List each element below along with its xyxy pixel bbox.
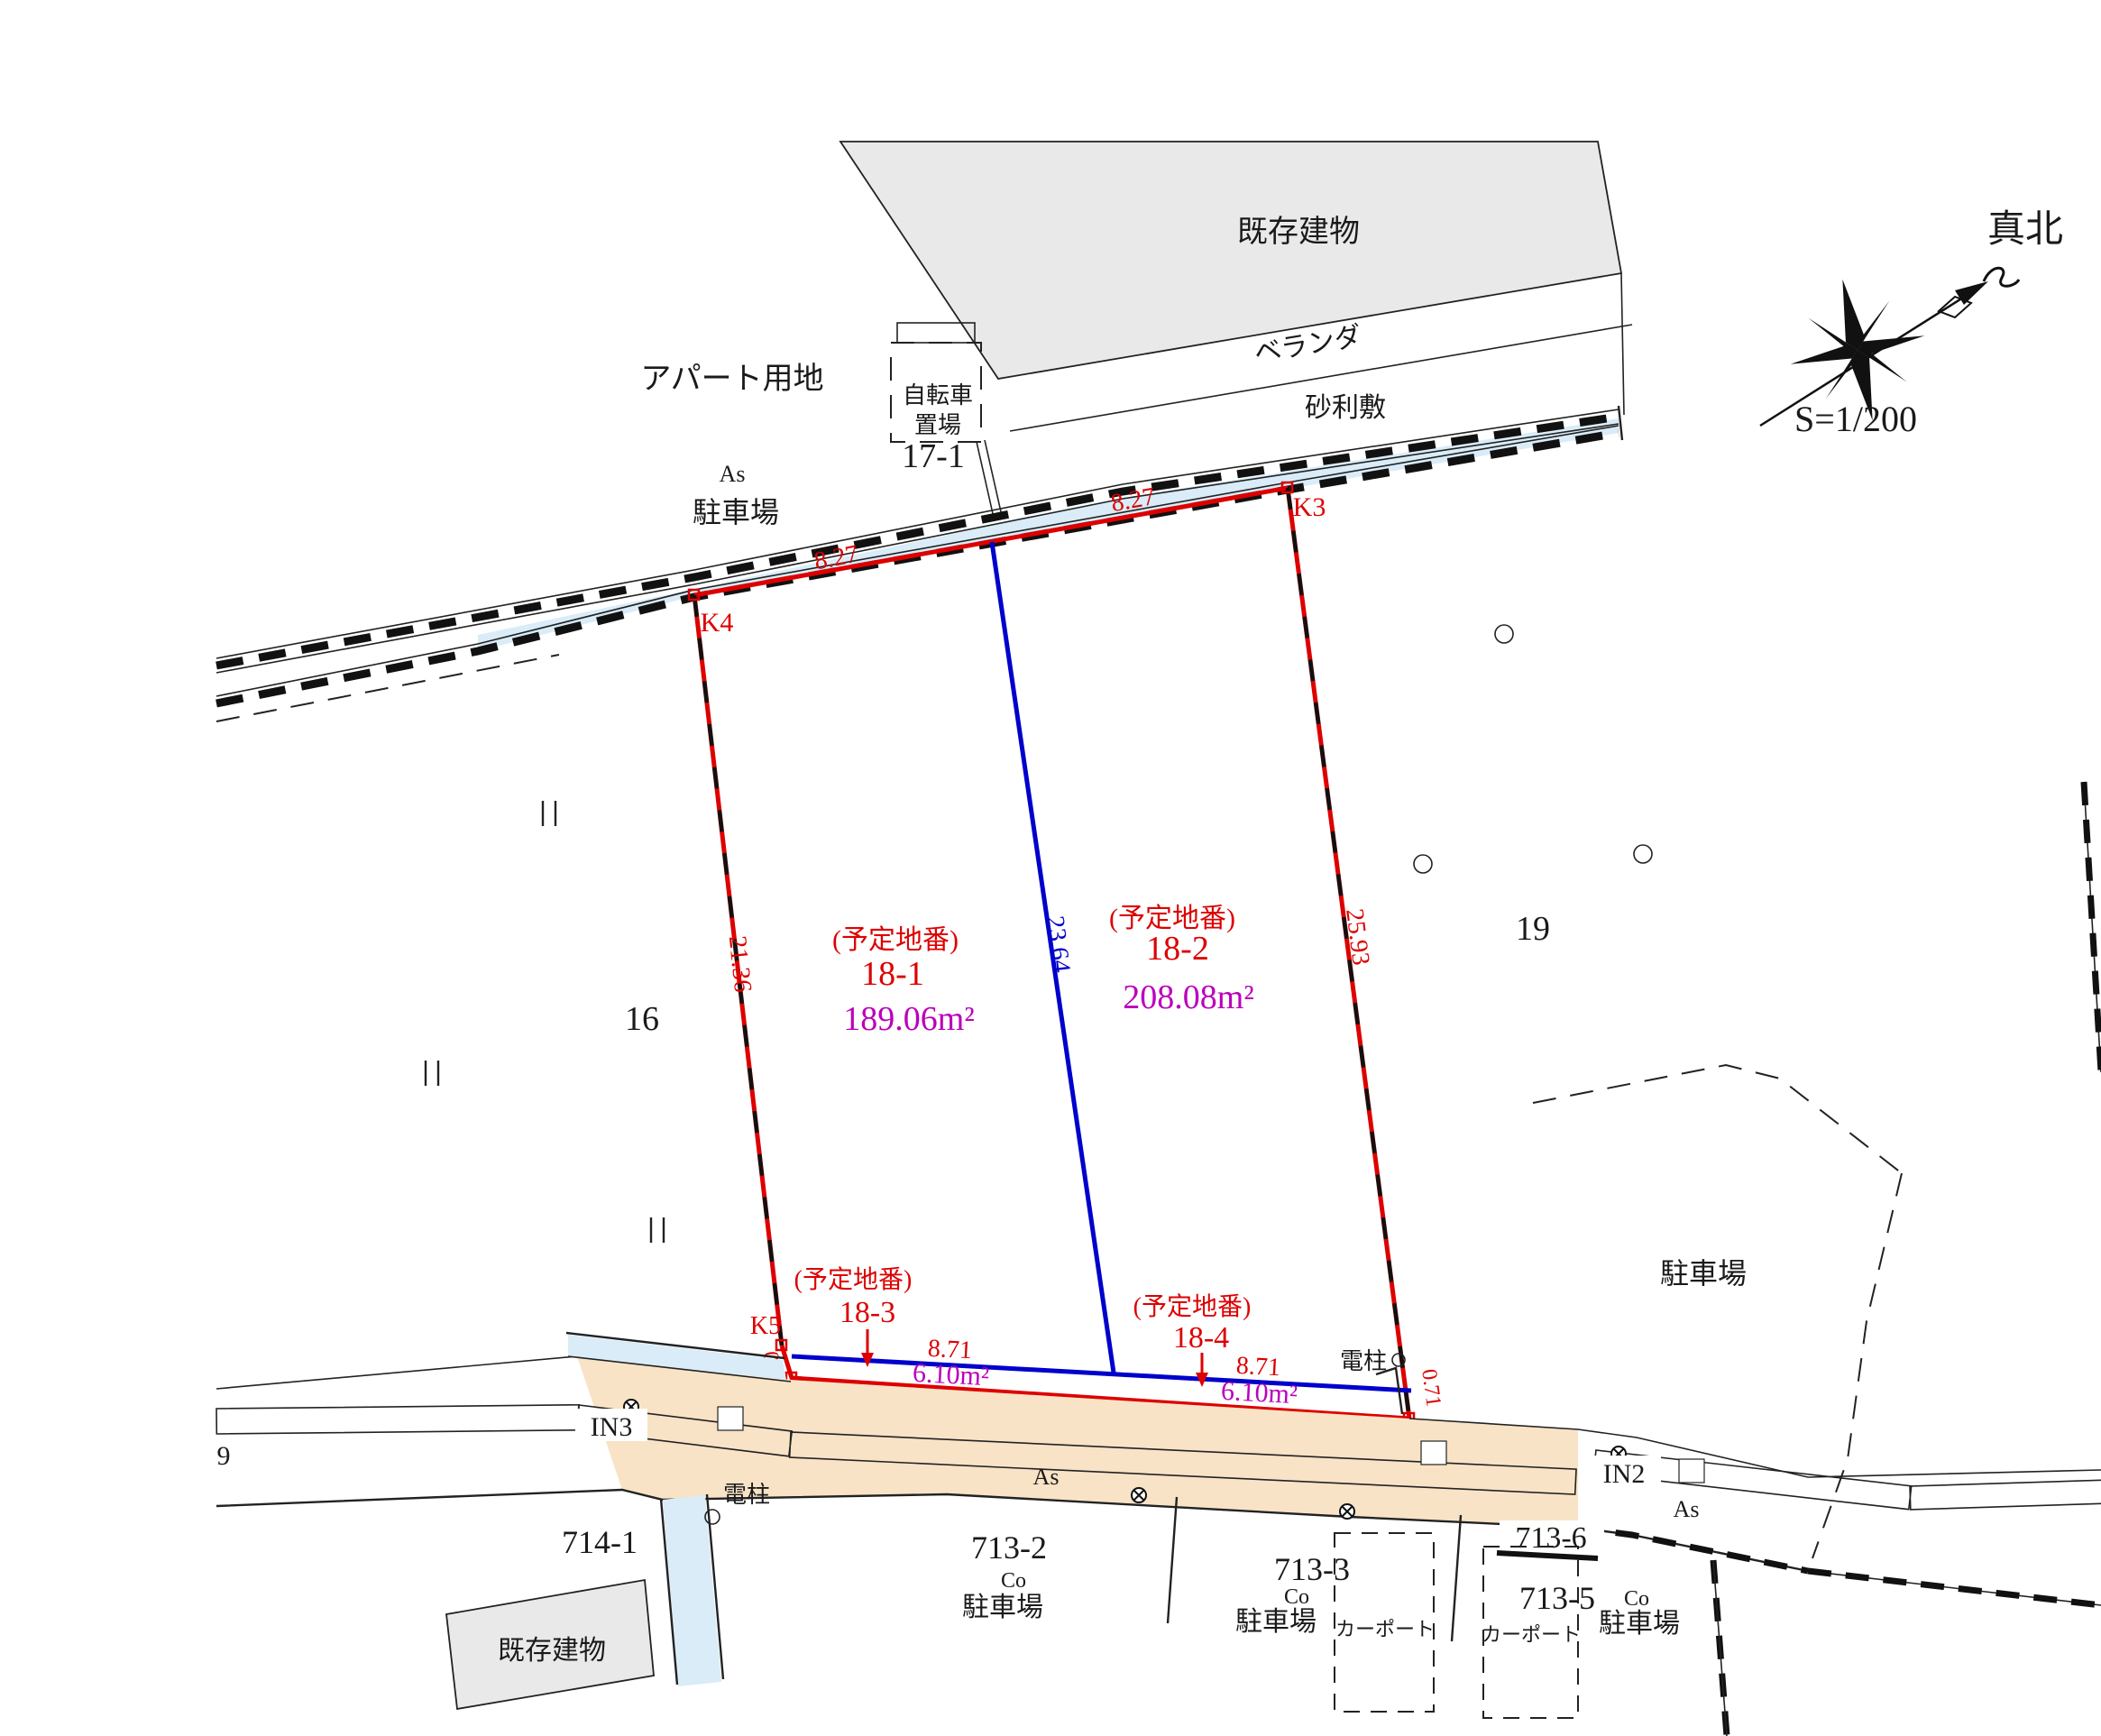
apartment-site-area: アパート用地 As 駐車場 自転車 置場 17-1 xyxy=(640,323,1002,528)
break-mark-3 xyxy=(651,1217,664,1243)
parking-label-topleft: 駐車場 xyxy=(693,496,779,528)
point-in3-label: IN3 xyxy=(591,1412,633,1442)
parking-label-right: 駐車場 xyxy=(1660,1257,1747,1290)
plot-18-3-number: 18-3 xyxy=(839,1296,895,1329)
bicycle-shed-label-1: 自転車 xyxy=(903,382,973,409)
plot-18-2-area: 208.08m² xyxy=(1123,978,1253,1016)
parcel-16-label: 16 xyxy=(625,1000,659,1038)
top-building-label: 既存建物 xyxy=(1237,215,1360,249)
parcel-713-5-label: 713-5 xyxy=(1519,1580,1595,1616)
parking-label-713-5r: 駐車場 xyxy=(1599,1609,1680,1639)
apartment-site-label: アパート用地 xyxy=(640,362,823,396)
pole-label-bottom: 電柱 xyxy=(723,1482,770,1508)
pole-label-top: 電柱 xyxy=(1340,1348,1387,1374)
parcel-713-2-label: 713-2 xyxy=(971,1529,1047,1566)
parcel-713-3-label: 713-3 xyxy=(1274,1551,1350,1587)
parcel-9-label: 9 xyxy=(217,1441,231,1471)
plot-18-3-caption: (予定地番) xyxy=(794,1265,913,1294)
dim-east: 25.93 xyxy=(1340,907,1374,967)
dim-center: 23.64 xyxy=(1041,914,1075,974)
plot-18-1-area: 189.06m² xyxy=(843,1000,974,1038)
co-label-3: Co xyxy=(1624,1587,1649,1611)
parcel-714-1-label: 714-1 xyxy=(562,1524,638,1560)
plot-18-1-caption: (予定地番) xyxy=(832,925,959,955)
co-label-1: Co xyxy=(1001,1569,1026,1593)
plot-18-1-number: 18-1 xyxy=(861,955,924,993)
carport-label-1: カーポート xyxy=(1335,1618,1435,1640)
parking-label-713-3: 駐車場 xyxy=(1235,1607,1317,1637)
true-north-label: 真北 xyxy=(1987,209,2063,251)
parcel-19-label: 19 xyxy=(1516,910,1550,948)
as-surface-label-road: As xyxy=(1033,1464,1060,1490)
parcel-17-1-label: 17-1 xyxy=(902,437,965,475)
plot-18-4: (予定地番) 18-4 8.71 6.10m² xyxy=(1133,1292,1298,1410)
survey-map-page: 既存建物 ベランダ 砂利敷 アパート用地 As 駐車場 自転車 置場 17-1 xyxy=(0,0,2101,1736)
as-surface-label-1: As xyxy=(720,461,746,487)
bottom-building-label: 既存建物 xyxy=(498,1636,606,1666)
scale-label: S=1/200 xyxy=(1794,399,1917,439)
plot-18-4-area: 6.10m² xyxy=(1220,1376,1298,1410)
point-k4-label: K4 xyxy=(701,608,734,638)
plot-18-3: (予定地番) 18-3 8.71 6.10m² xyxy=(794,1265,990,1392)
bicycle-shed-label-2: 置場 xyxy=(914,412,961,438)
carport-label-2: カーポート xyxy=(1482,1623,1581,1646)
utility-pole-k2: 電柱 xyxy=(1340,1348,1405,1414)
point-in2-label: IN2 xyxy=(1603,1459,1646,1489)
dim-west: 21.36 xyxy=(723,934,757,994)
plot-18-4-caption: (予定地番) xyxy=(1133,1292,1252,1321)
bottom-road: IN3 IN2 As As 9 xyxy=(216,1333,2101,1605)
compass: 真北 S=1/200 xyxy=(1760,209,2063,439)
plot-18-2: (予定地番) 18-2 208.08m² xyxy=(1109,904,1254,1016)
dim-k2-offset: 0.71 xyxy=(1417,1367,1445,1408)
break-mark-2 xyxy=(426,1061,438,1086)
point-k5-label: K5 xyxy=(750,1312,781,1340)
plot-18-2-number: 18-2 xyxy=(1146,930,1209,968)
parcel-713-6-label: 713-6 xyxy=(1515,1521,1586,1555)
gravel-label: 砂利敷 xyxy=(1305,393,1386,423)
plot-18-1: (予定地番) 18-1 189.06m² xyxy=(832,925,975,1038)
plot-18-3-area: 6.10m² xyxy=(912,1358,989,1392)
co-label-2: Co xyxy=(1284,1585,1309,1609)
top-existing-building: 既存建物 xyxy=(840,142,1624,415)
as-surface-label-right: As xyxy=(1674,1496,1700,1522)
break-mark-1 xyxy=(543,801,555,826)
plot-18-4-number: 18-4 xyxy=(1173,1321,1229,1355)
cadastral-drawing: 既存建物 ベランダ 砂利敷 アパート用地 As 駐車場 自転車 置場 17-1 xyxy=(0,0,2101,1736)
point-k3-label: K3 xyxy=(1293,492,1326,522)
parking-label-713-2: 駐車場 xyxy=(962,1593,1043,1622)
